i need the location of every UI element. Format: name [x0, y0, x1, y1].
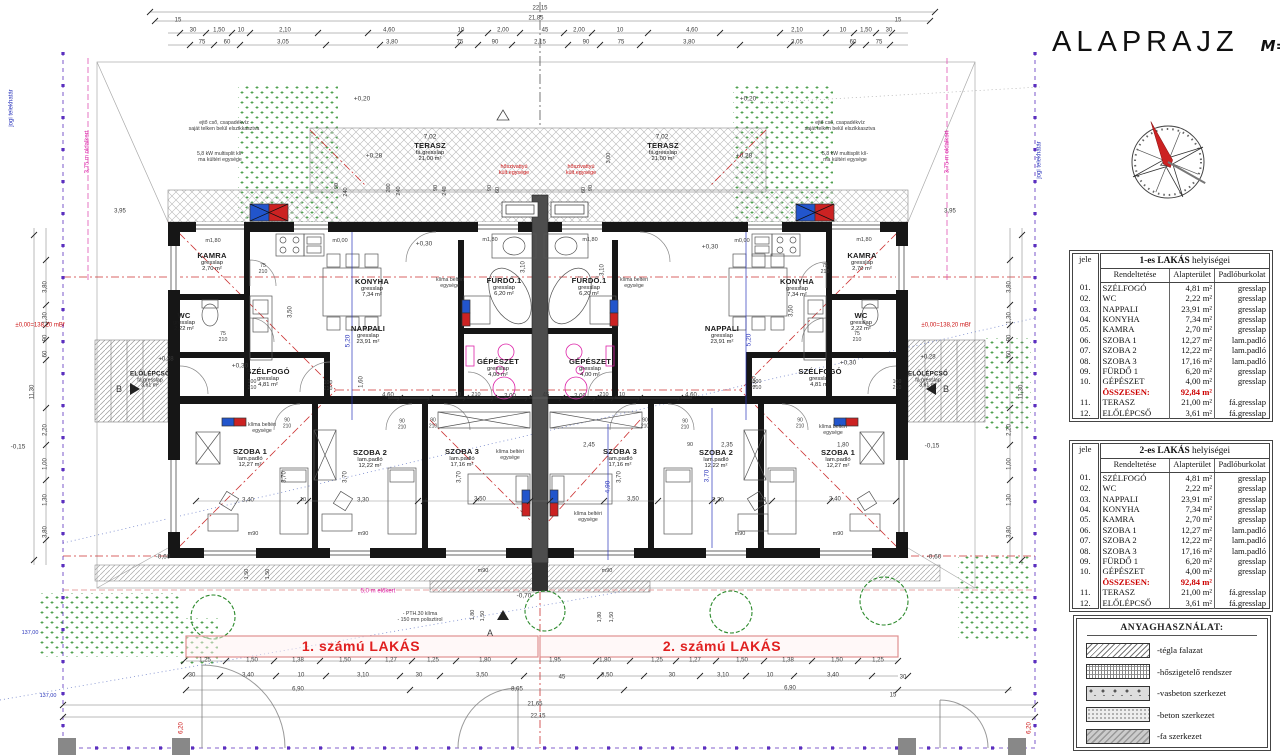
legend-swatch-wood-icon [1086, 729, 1150, 744]
title-block: ALAPRAJZ M=1:100 [1052, 26, 1274, 59]
table-row: ÖSSZESEN:92,84 m² [1073, 577, 1270, 587]
table-row: 02.WC2,22 m²gresslap [1073, 293, 1270, 303]
table-row: 01.SZÉLFOGÓ4,81 m²gresslap [1073, 282, 1270, 293]
table-row: 03.NAPPALI23,91 m²gresslap [1073, 304, 1270, 314]
fence-posts [58, 738, 1026, 755]
apartment-2-room-table: jele 2-es LAKÁS helyiségei Rendeltetése … [1072, 443, 1270, 609]
legend-swatch-brick-icon [1086, 643, 1150, 658]
table-row: 06.SZOBA 112,27 m²lam.padló [1073, 525, 1270, 535]
table-row: 10.GÉPÉSZET4,00 m²gresslap [1073, 376, 1270, 386]
table-row: 11.TERASZ21,00 m²fá.gresslap [1073, 397, 1270, 407]
party-wall [532, 195, 548, 591]
legend-swatch-insulation-icon [1086, 664, 1150, 679]
north-compass-icon [1116, 110, 1220, 214]
legend-swatch-rc-icon [1086, 686, 1150, 701]
table-row: 04.KONYHA7,34 m²gresslap [1073, 504, 1270, 514]
table-row: 12.ELŐLÉPCSŐ3,61 m²fá.gresslap [1073, 598, 1270, 609]
legend-item: -vasbeton szerkezet [1086, 686, 1258, 701]
table-row: 09.FÜRDŐ 16,20 m²gresslap [1073, 556, 1270, 566]
table-title: 1-es LAKÁS helyiségei [1099, 254, 1270, 269]
table-row: 10.GÉPÉSZET4,00 m²gresslap [1073, 566, 1270, 576]
table-row: 06.SZOBA 112,27 m²lam.padló [1073, 335, 1270, 345]
table-row: 05.KAMRA2,70 m²gresslap [1073, 324, 1270, 334]
table-row: 08.SZOBA 317,16 m²lam.padló [1073, 356, 1270, 366]
table-row: 01.SZÉLFOGÓ4,81 m²gresslap [1073, 472, 1270, 483]
table-row: 07.SZOBA 212,22 m²lam.padló [1073, 535, 1270, 545]
table-row: 12.ELŐLÉPCSŐ3,61 m²fá.gresslap [1073, 408, 1270, 419]
legend-item: -tégla falazat [1086, 643, 1258, 658]
table-row: 09.FÜRDŐ 16,20 m²gresslap [1073, 366, 1270, 376]
legend-item: -hőszigetelő rendszer [1086, 664, 1258, 679]
table-row: 04.KONYHA7,34 m²gresslap [1073, 314, 1270, 324]
legend-item: -beton szerkezet [1086, 707, 1258, 722]
materials-legend: ANYAGHASZNÁLAT: -tégla falazat-hőszigete… [1076, 618, 1268, 748]
apartment-banners [186, 636, 898, 657]
table-row: 08.SZOBA 317,16 m²lam.padló [1073, 546, 1270, 556]
legend-swatch-concrete-icon [1086, 707, 1150, 722]
floor-plan: +0,20+0,207,027,02+0,28+0,28hőszivattyú … [0, 0, 1045, 755]
table-header-row: Rendeltetése Alapterület Padlóburkolat [1073, 459, 1270, 472]
table-jele-header: jele [1073, 444, 1100, 473]
apartment-1-room-table: jele 1-es LAKÁS helyiségei Rendeltetése … [1072, 253, 1270, 419]
table-title: 2-es LAKÁS helyiségei [1099, 444, 1270, 459]
table-header-row: Rendeltetése Alapterület Padlóburkolat [1073, 269, 1270, 282]
table-row: 03.NAPPALI23,91 m²gresslap [1073, 494, 1270, 504]
page-title: ALAPRAJZ [1052, 26, 1239, 59]
table-row: 02.WC2,22 m²gresslap [1073, 483, 1270, 493]
table-row: ÖSSZESEN:92,84 m² [1073, 387, 1270, 397]
table-row: 07.SZOBA 212,22 m²lam.padló [1073, 345, 1270, 355]
legend-title: ANYAGHASZNÁLAT: [1087, 622, 1257, 636]
scale-label: M=1:100 [1261, 37, 1280, 55]
legend-item: -fa szerkezet [1086, 729, 1258, 744]
table-row: 05.KAMRA2,70 m²gresslap [1073, 514, 1270, 524]
floor-plan-drawing [0, 0, 1045, 755]
table-row: 11.TERASZ21,00 m²fá.gresslap [1073, 587, 1270, 597]
table-jele-header: jele [1073, 254, 1100, 283]
